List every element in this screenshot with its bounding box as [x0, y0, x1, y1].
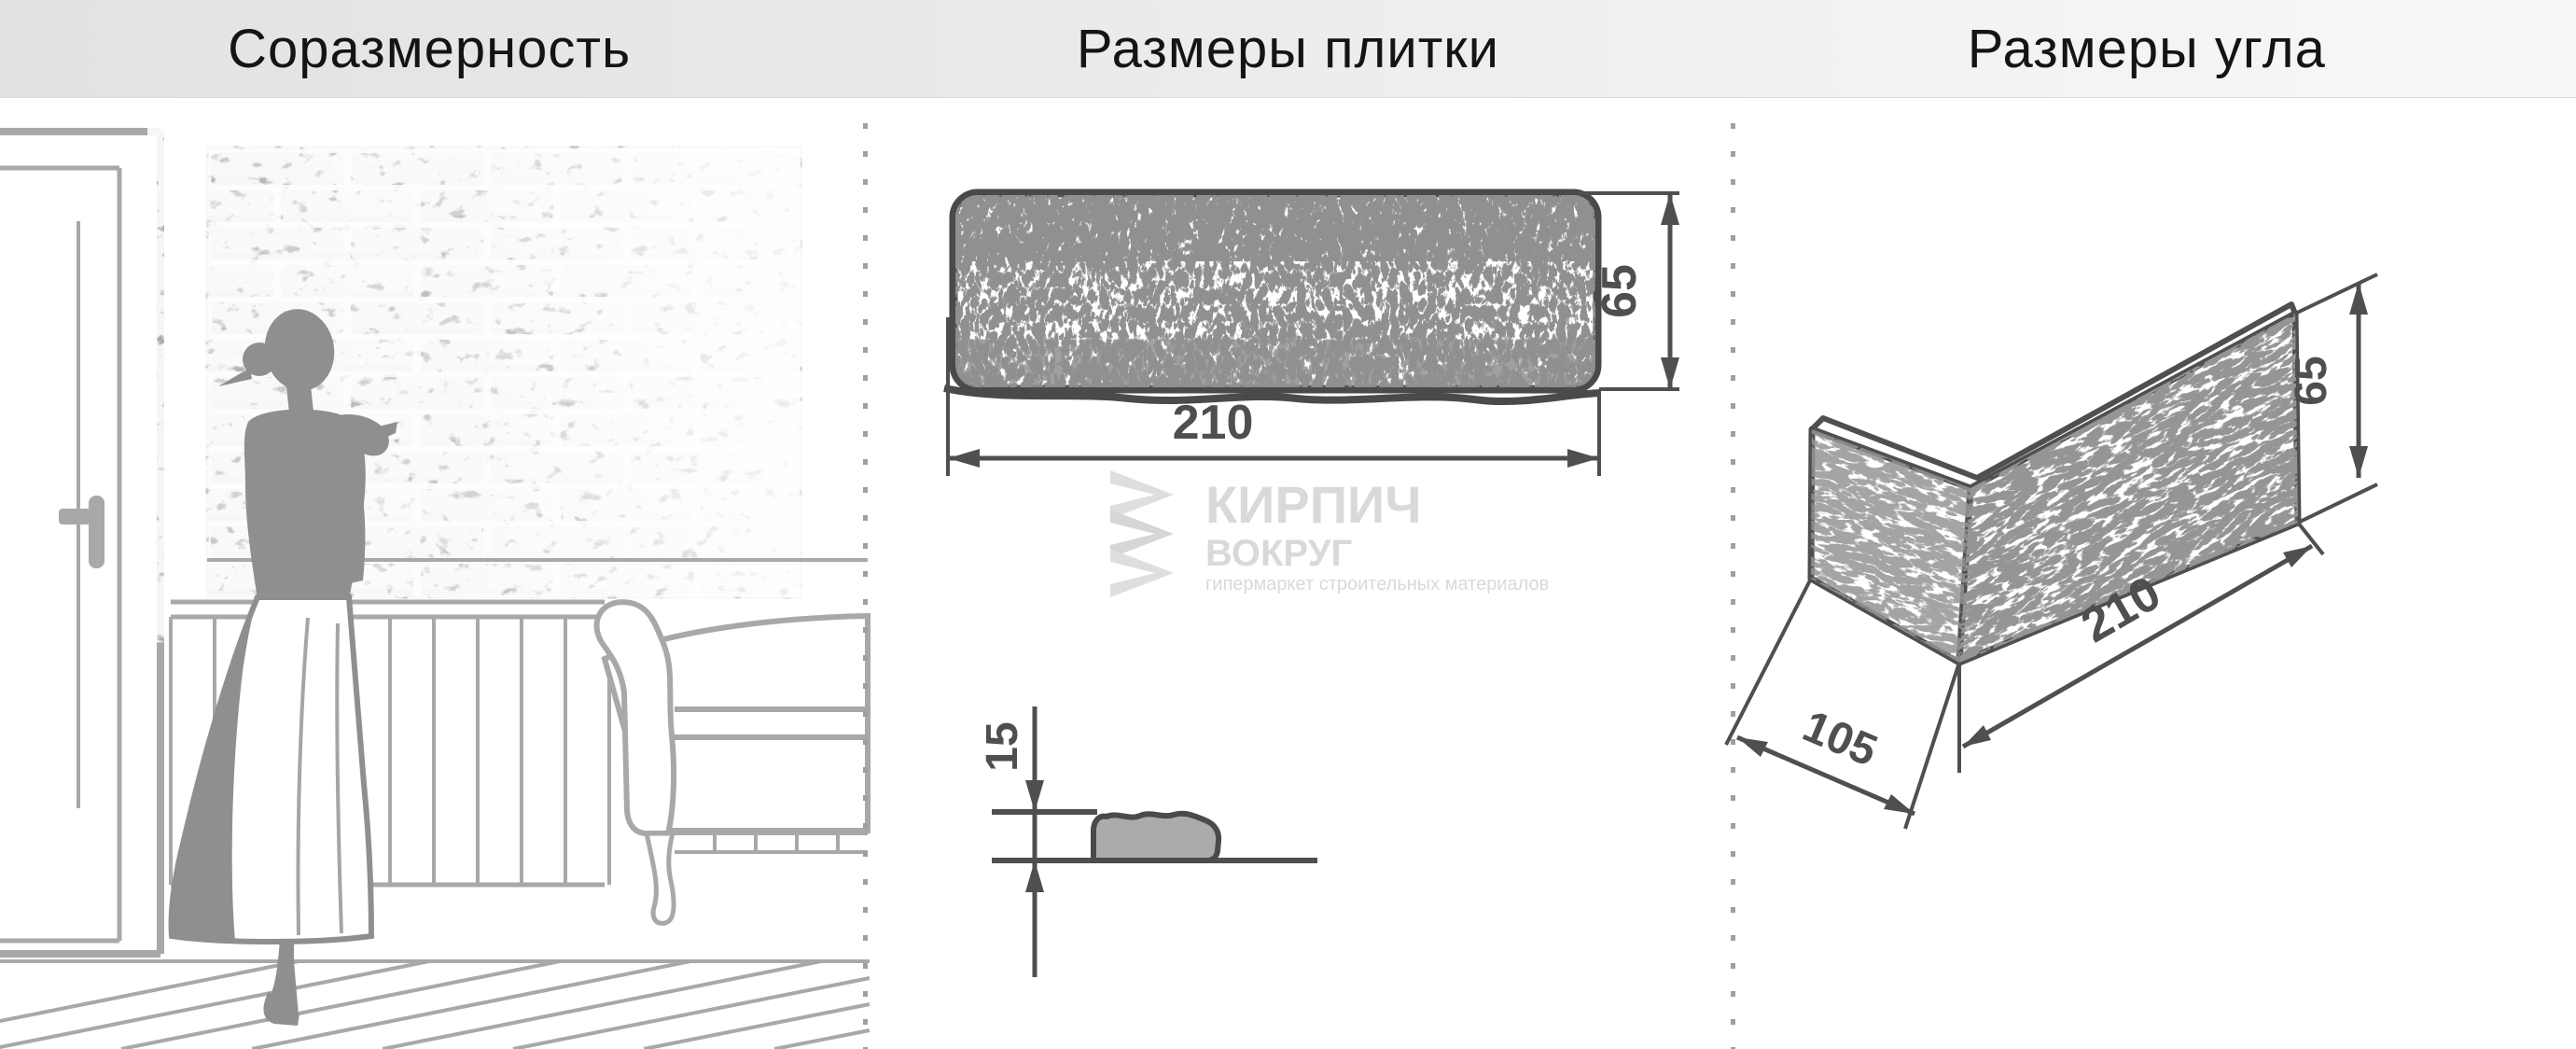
tile-side-profile: 15	[978, 706, 1317, 977]
brand-watermark: КИРПИЧ ВОКРУГ гипермаркет строительных м…	[1110, 470, 1549, 597]
tile-thickness-label: 15	[978, 721, 1027, 771]
watermark-brand-line1: КИРПИЧ	[1205, 475, 1422, 534]
thickness-dimension: 15	[978, 706, 1044, 977]
tile-texture	[954, 193, 1597, 389]
floor	[0, 961, 870, 1049]
sofa	[597, 602, 868, 923]
profile-shape	[1093, 814, 1218, 860]
tile-height-label: 65	[1593, 264, 1647, 318]
corner-piece-view: 65 210 105	[1726, 203, 2422, 829]
door-handle	[59, 496, 104, 568]
corner-depth-label: 105	[1796, 702, 1884, 776]
diagram-graphics: 210 65 15	[0, 0, 2576, 1049]
product-dimensions-figure: Соразмерность Размеры плитки Размеры угл…	[0, 0, 2576, 1049]
watermark-subtitle: гипермаркет строительных материалов	[1205, 574, 1549, 594]
corner-height-label: 65	[2287, 356, 2336, 405]
brand-logo-icon	[1110, 470, 1174, 597]
tile-width-label: 210	[1173, 396, 1254, 450]
door-outline	[0, 132, 160, 954]
tile-front-view: 210 65	[944, 193, 1679, 476]
proportion-scene	[0, 132, 870, 1049]
watermark-brand-line2: ВОКРУГ	[1205, 533, 1352, 574]
